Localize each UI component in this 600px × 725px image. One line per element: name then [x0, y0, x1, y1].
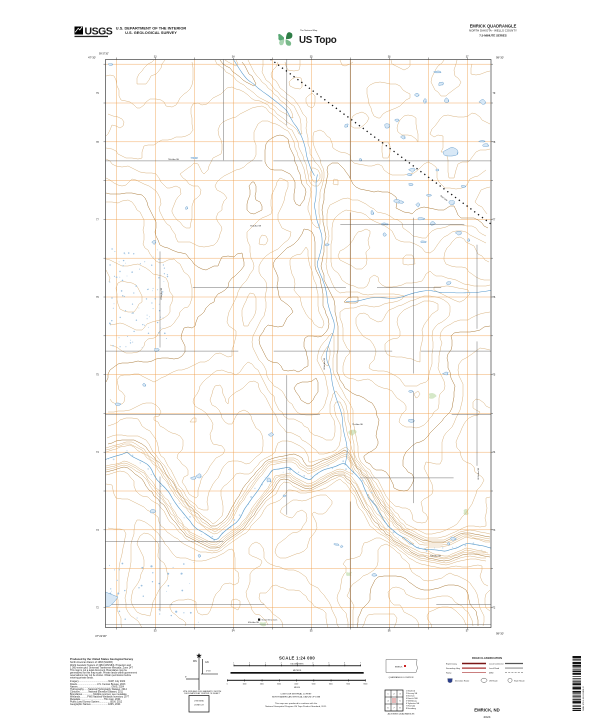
svg-text:99°37'30": 99°37'30"	[99, 54, 109, 56]
svg-text:EMRICK, ND: EMRICK, ND	[474, 708, 500, 713]
svg-text:69th Ave SE: 69th Ave SE	[248, 621, 260, 624]
svg-text:US Route: US Route	[489, 680, 499, 683]
svg-text:MILES: MILES	[294, 687, 301, 689]
svg-text:Secondary Hwy: Secondary Hwy	[446, 668, 460, 670]
svg-text:ADJOINING QUADRANGLES: ADJOINING QUADRANGLES	[388, 713, 415, 716]
svg-text:US Topo: US Topo	[299, 35, 337, 46]
svg-text:CONTOUR INTERVAL 10 FEET: CONTOUR INTERVAL 10 FEET	[280, 693, 312, 696]
svg-text:ROAD CLASSIFICATION: ROAD CLASSIFICATION	[472, 656, 502, 660]
svg-text:DECLINATION AT CENTER OF SHEET: DECLINATION AT CENTER OF SHEET	[184, 692, 220, 695]
svg-text:SCALE 1:24 000: SCALE 1:24 000	[279, 656, 315, 661]
svg-text:UTM GRID: UTM GRID	[194, 701, 204, 703]
svg-text:6000: 6000	[329, 684, 333, 686]
svg-text:7: 7	[360, 663, 361, 665]
svg-text:National Geospatial Program US: National Geospatial Program US Topo Prod…	[265, 705, 327, 708]
svg-text:MN: MN	[193, 660, 197, 663]
svg-text:U.S. GEOLOGICAL SURVEY: U.S. GEOLOGICAL SURVEY	[125, 30, 177, 35]
svg-text:99°30': 99°30'	[496, 632, 504, 636]
svg-text:1: 1	[233, 663, 234, 665]
svg-text:GN: GN	[205, 661, 209, 664]
svg-text:3: 3	[297, 663, 298, 665]
svg-text:147th Ave SE: 147th Ave SE	[477, 467, 480, 480]
svg-text:6: 6	[344, 663, 345, 665]
svg-text:4WD: 4WD	[489, 673, 494, 675]
svg-text:NORTH DAKOTA - WELLS COUNTY: NORTH DAKOTA - WELLS COUNTY	[469, 29, 517, 33]
svg-text:7000: 7000	[346, 684, 350, 686]
svg-text:The National Map: The National Map	[300, 29, 318, 32]
svg-text:0: 0	[249, 663, 250, 665]
svg-text:EMRICK: EMRICK	[395, 667, 403, 669]
svg-text:4000: 4000	[294, 684, 298, 686]
svg-text:73rd Ave SE: 73rd Ave SE	[250, 225, 262, 228]
svg-text:entering private lands.: entering private lands.	[70, 677, 94, 680]
svg-text:Grand View Cem: Grand View Cem	[262, 619, 278, 622]
svg-text:74th Ave SE: 74th Ave SE	[168, 158, 180, 161]
svg-text:ISBN 978-1-616-81861-8: ISBN 978-1-616-81861-8	[583, 686, 585, 711]
svg-text:0°16': 0°16'	[206, 671, 212, 673]
svg-text:Interstate Route: Interstate Route	[455, 680, 470, 683]
svg-text:State Route: State Route	[514, 680, 525, 683]
svg-text:EMRICK QUADRANGLE: EMRICK QUADRANGLE	[470, 23, 517, 28]
svg-text:5000: 5000	[312, 684, 316, 686]
svg-text:QUADRANGLE LOCATION: QUADRANGLE LOCATION	[389, 676, 414, 679]
svg-text:Local Connector: Local Connector	[489, 662, 504, 665]
svg-text:Geographic Names..............: Geographic Names........................…	[70, 703, 121, 706]
svg-text:NORTH AMERICAN VERTICAL DATUM: NORTH AMERICAN VERTICAL DATUM OF 1988	[272, 696, 321, 699]
svg-text:4: 4	[312, 663, 313, 665]
svg-text:7.5-MINUTE SERIES: 7.5-MINUTE SERIES	[479, 34, 507, 38]
svg-text:1: 1	[265, 663, 266, 665]
svg-text:47°22'30": 47°22'30"	[95, 634, 107, 638]
svg-text:2000: 2000	[260, 684, 264, 686]
svg-text:71st Ave SE: 71st Ave SE	[352, 423, 364, 426]
svg-text:0: 0	[227, 684, 228, 686]
svg-text:150th Ave SE: 150th Ave SE	[160, 287, 163, 300]
svg-text:This map was produced to confo: This map was produced to conform with th…	[275, 702, 318, 705]
svg-text:3000: 3000	[277, 684, 281, 686]
svg-text:USGS: USGS	[85, 26, 113, 38]
svg-text:70th Ave SE: 70th Ave SE	[430, 554, 442, 557]
svg-text:1000: 1000	[243, 684, 247, 686]
svg-text:99°30': 99°30'	[496, 55, 504, 59]
svg-text:8 Hamberg: 8 Hamberg	[406, 708, 416, 710]
svg-text:8000: 8000	[364, 684, 368, 686]
svg-text:47°30': 47°30'	[88, 56, 96, 60]
svg-text:6°: 6°	[185, 677, 187, 679]
svg-text:2024: 2024	[484, 715, 491, 719]
svg-text:METERS: METERS	[293, 670, 302, 672]
svg-text:Expressway: Expressway	[446, 663, 457, 665]
svg-text:2: 2	[281, 663, 282, 665]
svg-text:5: 5	[328, 663, 329, 665]
svg-text:149th Ave SE: 149th Ave SE	[323, 357, 326, 370]
svg-text:Ramp: Ramp	[446, 673, 452, 675]
svg-text:ZONE 14T: ZONE 14T	[194, 705, 204, 707]
svg-text:Local Road: Local Road	[489, 668, 499, 670]
